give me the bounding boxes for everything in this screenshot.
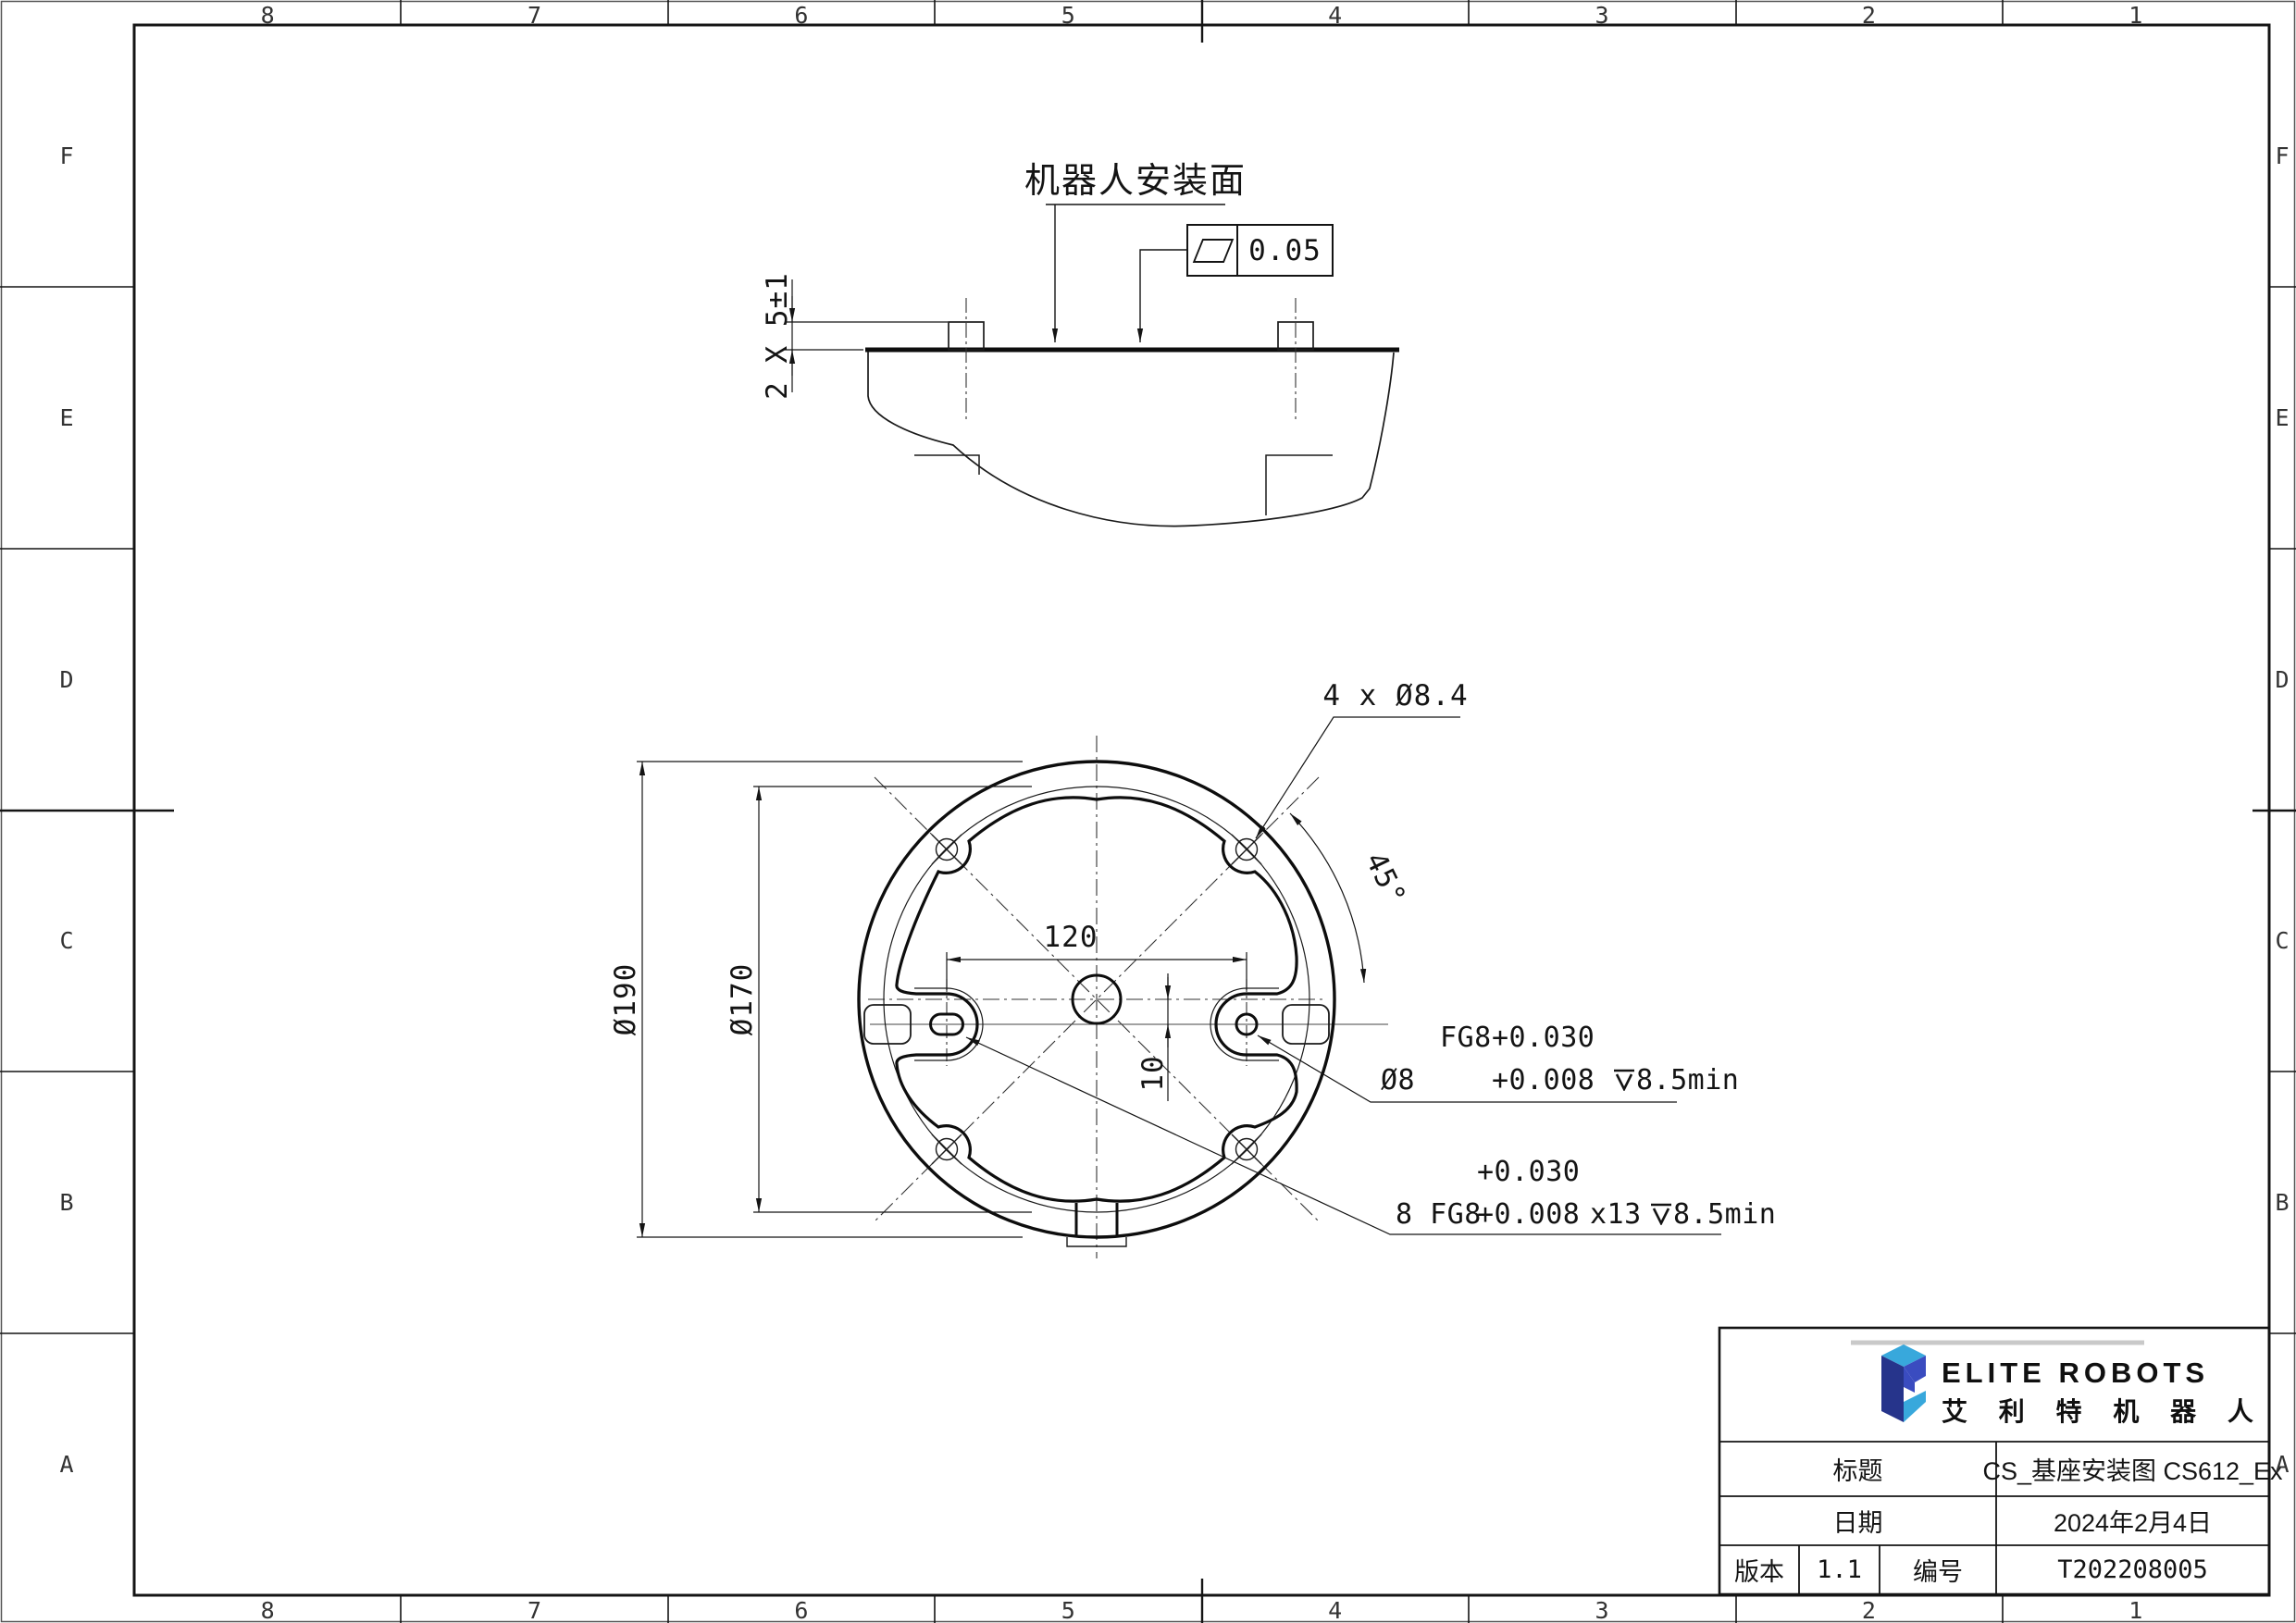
zone-label-col: 1 <box>2117 1597 2154 1623</box>
zone-label-row: E <box>48 404 85 430</box>
pin-hole-depth: 8.5min <box>1612 1064 1739 1096</box>
depth-symbol-icon <box>1649 1201 1673 1225</box>
zone-label-col: 5 <box>1049 1597 1086 1623</box>
zone-label-col: 7 <box>516 1597 553 1623</box>
pin-hole-fit: FG8 <box>1440 1022 1492 1054</box>
zone-label-col: 7 <box>516 2 553 28</box>
zone-label-col: 3 <box>1583 1597 1620 1623</box>
zone-label-row: D <box>2264 666 2296 692</box>
slot-tol-lower: +0.008 <box>1477 1198 1580 1231</box>
version-label: 版本 <box>1719 1545 1799 1594</box>
pin-height-dim: 2 X 5±1 <box>762 276 793 396</box>
zone-label-col: 2 <box>1850 2 1887 28</box>
zone-label-row: E <box>2264 404 2296 430</box>
date-value: 2024年2月4日 <box>1996 1496 2269 1545</box>
logo-text-en: ELITE ROBOTS <box>1942 1357 2209 1390</box>
zone-label-col: 2 <box>1850 1597 1887 1623</box>
zone-label-row: C <box>2264 928 2296 954</box>
zone-label-col: 6 <box>783 2 820 28</box>
zone-label-col: 4 <box>1317 2 1354 28</box>
zone-label-col: 5 <box>1049 2 1086 28</box>
pin-offset-dim: 10 <box>1137 1047 1169 1099</box>
number-value: T202208005 <box>1996 1545 2269 1594</box>
drawing-sheet: 机器人安装面 0.05 2 X 5±1 Ø190 Ø170 120 10 4 x… <box>0 0 2296 1623</box>
slot-depth: 8.5min <box>1649 1198 1776 1231</box>
zone-label-col: 8 <box>249 1597 286 1623</box>
slot-mult: x13 <box>1590 1198 1642 1231</box>
number-label: 编号 <box>1880 1545 1996 1594</box>
holes-count-dim: 4 x Ø8.4 <box>1323 679 1468 712</box>
flatness-icon <box>1193 239 1235 263</box>
zone-label-row: B <box>48 1190 85 1216</box>
version-value: 1.1 <box>1799 1545 1880 1594</box>
zone-label-row: C <box>48 928 85 954</box>
outer-dia-dim: Ø190 <box>610 944 641 1055</box>
flatness-symbol-cell <box>1189 227 1237 274</box>
zone-label-row: A <box>48 1452 85 1478</box>
zone-label-col: 8 <box>249 2 286 28</box>
zone-label-col: 1 <box>2117 2 2154 28</box>
zone-label-col: 4 <box>1317 1597 1354 1623</box>
flatness-value: 0.05 <box>1237 227 1333 274</box>
elite-robots-logo-icon <box>1881 1344 1926 1422</box>
zone-label-row: D <box>48 666 85 692</box>
pin-hole-prefix: Ø8 <box>1381 1064 1415 1096</box>
title-value: CS_基座安装图 CS612_Ex <box>1996 1442 2269 1496</box>
title-label: 标题 <box>1719 1442 1996 1496</box>
zone-label-col: 6 <box>783 1597 820 1623</box>
zone-label-row: F <box>48 142 85 168</box>
zone-label-col: 3 <box>1583 2 1620 28</box>
zone-label-row: B <box>2264 1190 2296 1216</box>
pin-hole-tol-lower: +0.008 <box>1492 1064 1595 1096</box>
bolt-circle-dim: Ø170 <box>726 944 758 1055</box>
date-label: 日期 <box>1719 1496 1996 1545</box>
zone-label-row: F <box>2264 142 2296 168</box>
zone-label-row: A <box>2264 1452 2296 1478</box>
slot-prefix: 8 FG8 <box>1396 1198 1482 1231</box>
surface-label: 机器人安装面 <box>1044 155 1227 198</box>
depth-symbol-icon <box>1612 1067 1636 1091</box>
pin-hole-tol-upper: +0.030 <box>1492 1022 1595 1054</box>
slot-tol-upper: +0.030 <box>1477 1156 1580 1188</box>
logo-text-cn: 艾 利 特 机 器 人 <box>1942 1392 2265 1429</box>
bolt-span-dim: 120 <box>1018 922 1123 953</box>
